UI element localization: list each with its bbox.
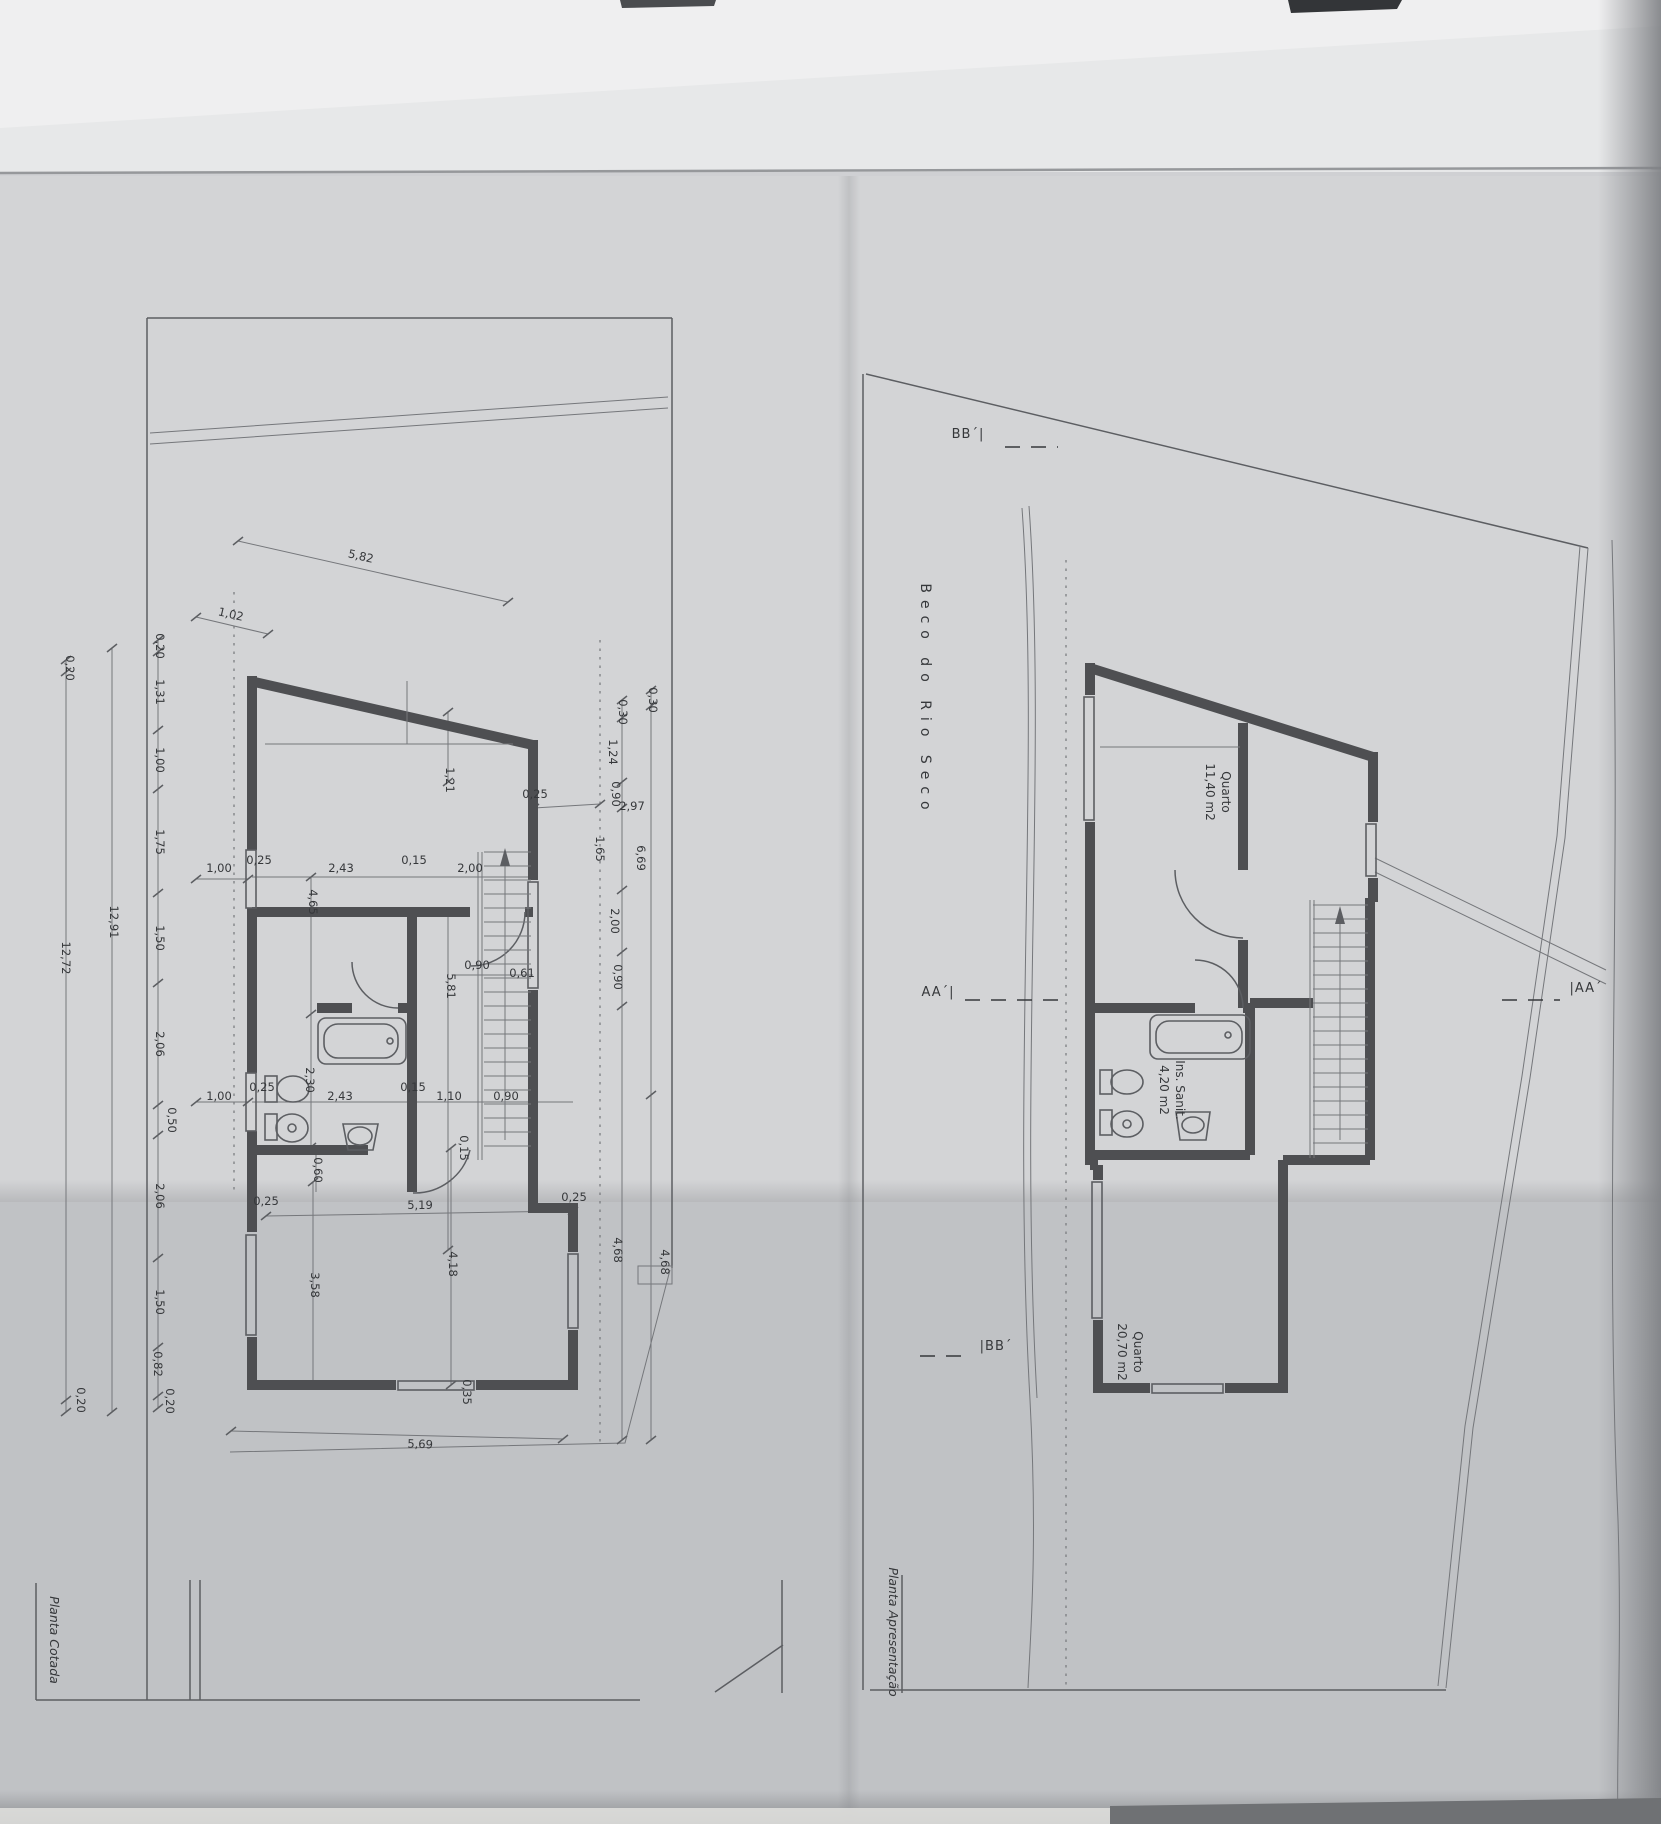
dimension-label: 3,58 [308, 1272, 322, 1298]
dimension-label: 0,25 [561, 1190, 587, 1204]
under-page-sliver [0, 1808, 1110, 1824]
section-marker: |BB´ [980, 1339, 1013, 1354]
dimension-label: 4,68 [658, 1249, 672, 1275]
dimension-label: 1,00 [153, 747, 167, 773]
dimension-label: 2,00 [457, 861, 483, 875]
dimension-label: 5,81 [444, 973, 458, 999]
dimension-label: 2,43 [327, 1089, 353, 1103]
dimension-label: 2,06 [153, 1183, 167, 1209]
dimension-label: 0,90 [609, 781, 623, 807]
dimension-label: 0,61 [509, 966, 535, 980]
dimension-label: 1,50 [153, 925, 167, 951]
dimension-label: 4,68 [611, 1237, 625, 1263]
dimension-label: 0,25 [522, 787, 548, 801]
scanned-plan-photo: 0,2012,720,2012,910,201,311,001,751,502,… [0, 0, 1661, 1824]
dimension-label: 0,20 [63, 655, 77, 681]
dimension-label: 12,91 [107, 906, 121, 939]
section-marker: BB´| [952, 427, 985, 442]
left-plan-title: Planta Cotada [47, 1596, 62, 1684]
dimension-label: 1,10 [436, 1089, 462, 1103]
dimension-label: 0,15 [400, 1080, 426, 1094]
dimension-label: 2,00 [608, 908, 622, 934]
dimension-label: 5,69 [407, 1437, 433, 1452]
dimension-label: 0,30 [616, 699, 630, 725]
dimension-label: 5,19 [407, 1198, 433, 1212]
paper-edge-shadow [1598, 0, 1661, 1824]
dimension-label: 0,25 [246, 853, 272, 867]
left-plan-title-block: Planta Cotada [47, 1596, 62, 1684]
room-name-label: Quarto [1131, 1331, 1145, 1372]
dimension-label: 0,15 [401, 853, 427, 867]
dimension-label: 1,00 [206, 861, 232, 875]
street-name-label: Beco do Rio Seco [917, 583, 933, 816]
dimension-label: 0,50 [165, 1107, 179, 1133]
dimension-label: 1,50 [153, 1289, 167, 1315]
dimension-label: 0,35 [460, 1379, 474, 1405]
dimension-label: 0,90 [464, 958, 490, 972]
dimension-label: 0,20 [74, 1387, 88, 1413]
dimension-label: 2,06 [153, 1031, 167, 1057]
dimension-label: 4,65 [306, 889, 320, 915]
dimension-label: 1,31 [153, 679, 167, 705]
room-name-label: Quarto [1219, 771, 1233, 812]
dimension-label: 0,15 [457, 1135, 471, 1161]
room-area-label: 11,40 m2 [1203, 763, 1217, 821]
room-name-label: Ins. Sanit. [1173, 1060, 1187, 1119]
dimension-label: 0,82 [151, 1351, 165, 1377]
dimension-label: 0,90 [493, 1089, 519, 1103]
dimension-label: 2,43 [328, 861, 354, 875]
dimension-label: 0,90 [611, 964, 625, 990]
dimension-label: 1,21 [443, 767, 457, 793]
dimension-label: 4,18 [446, 1251, 460, 1277]
room-area-label: 4,20 m2 [1157, 1065, 1171, 1115]
dimension-label: 0,30 [646, 687, 660, 713]
drawing-sheet: 0,2012,720,2012,910,201,311,001,751,502,… [0, 0, 1661, 1824]
section-marker: AA´| [921, 985, 954, 1000]
dimension-label: 0,60 [311, 1157, 325, 1183]
dimension-label: 1,24 [606, 739, 620, 765]
vertical-fold [838, 176, 860, 1824]
dimension-label: 1,65 [593, 836, 607, 862]
room-area-label: 20,70 m2 [1115, 1323, 1129, 1381]
dimension-label: 0,25 [253, 1194, 279, 1208]
dimension-label: 0,20 [163, 1388, 177, 1414]
dimension-label: 1,75 [153, 829, 167, 855]
dimension-label: 0,20 [153, 633, 167, 659]
dimension-label: 2,30 [303, 1067, 317, 1093]
section-marker: |AA´ [1569, 981, 1602, 996]
dimension-label: 6,69 [634, 845, 648, 871]
right-plan-title: Planta Apresentação [886, 1567, 901, 1697]
dimension-label: 0,25 [249, 1080, 275, 1094]
dimension-label: 12,72 [59, 942, 73, 975]
dimension-label: 1,00 [206, 1089, 232, 1103]
